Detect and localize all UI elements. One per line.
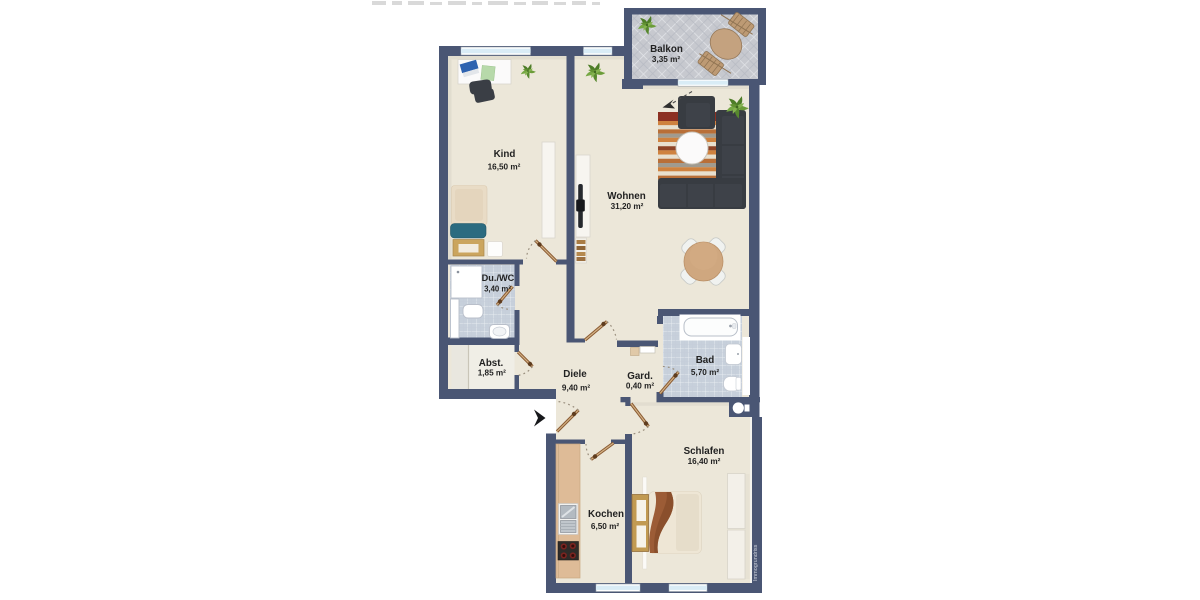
svg-text:9,40 m²: 9,40 m² — [562, 384, 590, 393]
svg-text:Du./WC: Du./WC — [482, 273, 515, 283]
svg-text:3,35 m²: 3,35 m² — [652, 55, 680, 64]
svg-text:1,85 m²: 1,85 m² — [478, 369, 506, 378]
svg-text:Gard.: Gard. — [627, 371, 653, 382]
svg-text:Schlafen: Schlafen — [684, 446, 725, 457]
svg-text:Bad: Bad — [696, 355, 715, 366]
svg-text:Kind: Kind — [494, 149, 516, 160]
svg-text:3,40 m²: 3,40 m² — [484, 285, 511, 294]
svg-text:Kochen: Kochen — [588, 509, 624, 520]
svg-text:Immogrundriss: Immogrundriss — [753, 544, 759, 581]
svg-text:5,70 m²: 5,70 m² — [691, 368, 719, 377]
svg-text:0,40 m²: 0,40 m² — [626, 382, 654, 391]
svg-text:16,50 m²: 16,50 m² — [488, 163, 521, 172]
svg-text:Abst.: Abst. — [479, 358, 504, 369]
svg-text:31,20 m²: 31,20 m² — [611, 202, 644, 211]
svg-text:Wohnen: Wohnen — [607, 191, 645, 202]
svg-text:16,40 m²: 16,40 m² — [688, 457, 721, 466]
svg-text:Diele: Diele — [563, 369, 587, 380]
svg-text:6,50 m²: 6,50 m² — [591, 522, 619, 531]
svg-text:Balkon: Balkon — [650, 44, 683, 55]
